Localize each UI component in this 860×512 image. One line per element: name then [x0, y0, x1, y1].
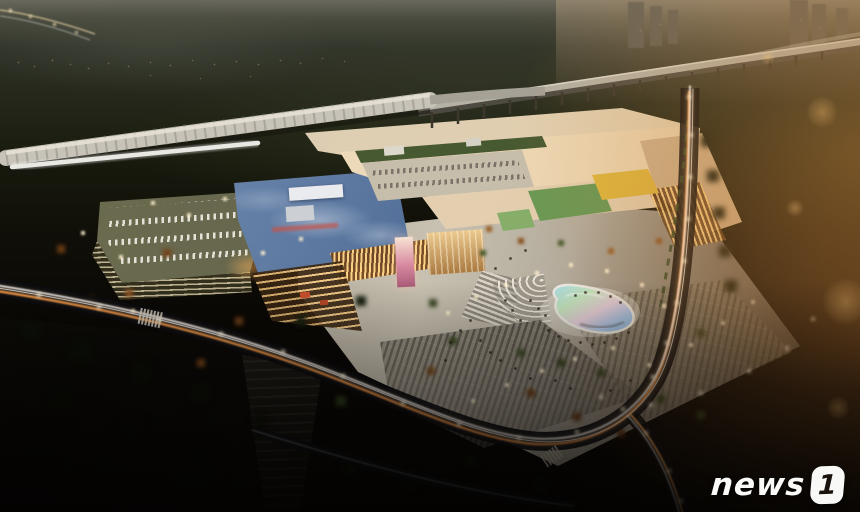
watermark-number-badge: 1 — [809, 465, 845, 504]
aerial-mall-rendering: news 1 — [0, 0, 860, 512]
watermark-text: news — [710, 467, 807, 503]
vignette — [0, 0, 860, 512]
watermark-number: 1 — [818, 469, 838, 501]
news1-watermark: news 1 — [711, 466, 844, 504]
